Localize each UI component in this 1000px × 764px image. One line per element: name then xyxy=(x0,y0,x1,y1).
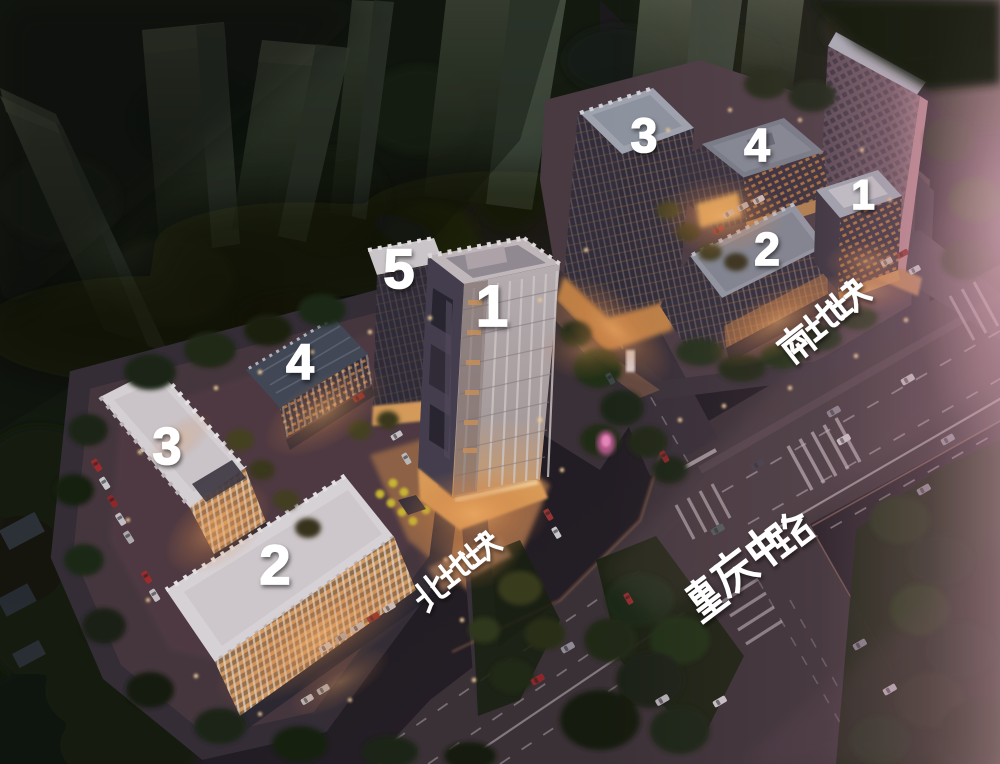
svg-text:1: 1 xyxy=(476,274,508,339)
svg-text:5: 5 xyxy=(383,237,414,300)
svg-text:2: 2 xyxy=(259,533,290,596)
svg-text:3: 3 xyxy=(631,110,658,163)
svg-text:4: 4 xyxy=(744,119,770,171)
svg-text:2: 2 xyxy=(754,223,780,275)
svg-text:3: 3 xyxy=(153,418,182,476)
svg-text:1: 1 xyxy=(851,171,874,218)
svg-text:4: 4 xyxy=(286,334,314,390)
